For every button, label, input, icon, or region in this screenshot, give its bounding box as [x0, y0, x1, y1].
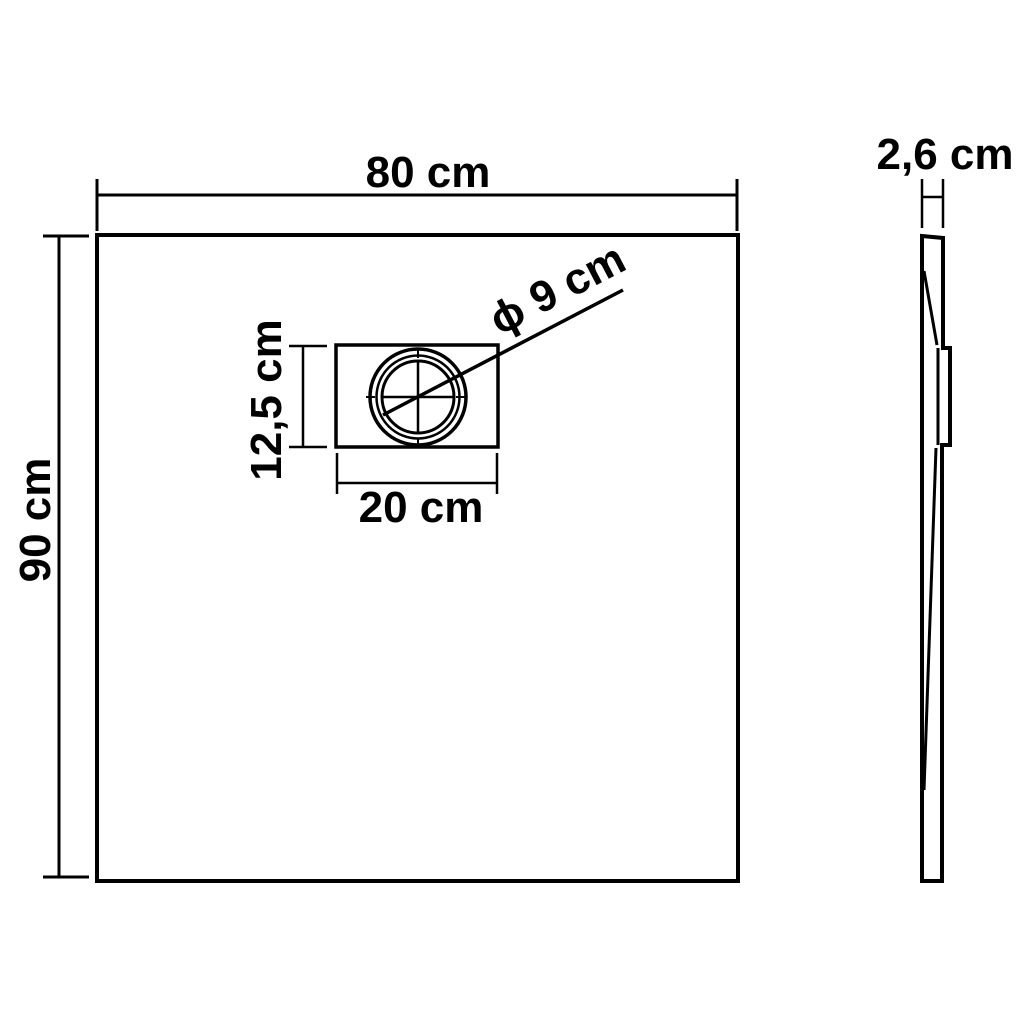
drain-detail: ϕ 9 cm 12,5 cm 20 cm	[242, 234, 633, 532]
drawing-canvas: 80 cm 90 cm	[0, 0, 1024, 1024]
side-lower-slope-line	[924, 448, 936, 790]
thickness-dimension-label: 2,6 cm	[877, 130, 1014, 179]
shower-tray-dimension-diagram: 80 cm 90 cm	[0, 0, 1024, 1024]
height-dimension-label: 90 cm	[11, 458, 60, 583]
height-dimension: 90 cm	[11, 236, 89, 877]
front-view: 80 cm 90 cm	[11, 148, 738, 881]
drain-height-dimension: 12,5 cm	[242, 319, 327, 480]
side-view: 2,6 cm	[877, 130, 1014, 881]
width-dimension: 80 cm	[97, 148, 737, 231]
drain-width-dimension: 20 cm	[337, 453, 497, 532]
thickness-dimension: 2,6 cm	[877, 130, 1014, 228]
drain-diameter-label: ϕ 9 cm	[481, 234, 633, 345]
side-upper-slope-line	[924, 271, 937, 345]
drain-width-dimension-label: 20 cm	[359, 483, 484, 532]
drain-height-dimension-label: 12,5 cm	[242, 319, 291, 480]
width-dimension-label: 80 cm	[366, 148, 491, 197]
tray-front-outline	[97, 235, 738, 881]
